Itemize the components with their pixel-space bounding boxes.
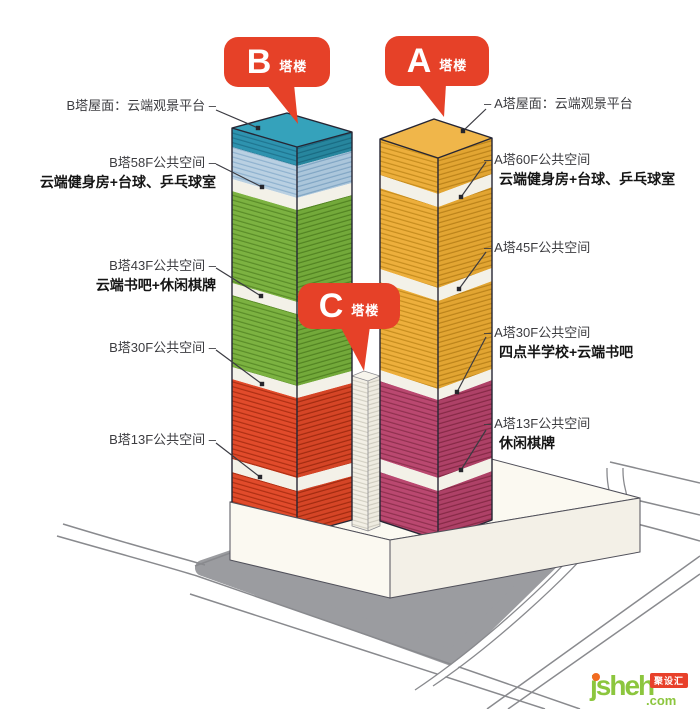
tower-c-suffix: 塔楼 [351, 300, 379, 319]
label-a-30f-amenity: 四点半学校+云端书吧 [499, 345, 633, 360]
label-a-30f: – A塔30F公共空间 [484, 326, 590, 340]
jsheh-logo: jsheh 聚设汇 .com [588, 666, 700, 709]
logo-dot-icon [592, 673, 600, 681]
label-a-45f: – A塔45F公共空间 [484, 241, 590, 255]
bubble-tower-c: C 塔楼 [298, 283, 400, 329]
label-a-roof: – A塔屋面：云端观景平台 [484, 97, 633, 111]
tower-a [380, 119, 492, 540]
tower-a-suffix: 塔楼 [439, 55, 467, 74]
label-b-roof: B塔屋面：云端观景平台 – [66, 99, 216, 113]
bubble-tower-b: B 塔楼 [224, 37, 330, 87]
building-diagram: B 塔楼 A 塔楼 C 塔楼 B塔屋面：云端观景平台 – B塔58F公共空间 –… [0, 0, 700, 709]
label-a-13f: – A塔13F公共空间 [484, 417, 590, 431]
label-b-58f: B塔58F公共空间 – [109, 156, 216, 170]
label-b-13f: B塔13F公共空间 – [109, 433, 216, 447]
logo-badge: 聚设汇 [650, 673, 688, 688]
tower-b-suffix: 塔楼 [279, 56, 307, 75]
label-b-30f: B塔30F公共空间 – [109, 341, 216, 355]
label-a-13f-amenity: 休闲棋牌 [499, 436, 555, 451]
tower-a-letter: A [407, 44, 432, 78]
label-a-60f-amenity: 云端健身房+台球、乒乓球室 [499, 172, 675, 187]
label-b-43f-amenity: 云端书吧+休闲棋牌 [96, 278, 216, 293]
bubble-tower-a: A 塔楼 [385, 36, 489, 86]
leader-a-roof [461, 109, 486, 133]
label-b-43f: B塔43F公共空间 – [109, 259, 216, 273]
logo-tld: .com [646, 693, 676, 708]
tower-c-letter: C [319, 289, 344, 323]
label-a-60f: – A塔60F公共空间 [484, 153, 590, 167]
tower-c [352, 371, 380, 531]
bubble-a-tail [418, 84, 446, 117]
label-b-58f-amenity: 云端健身房+台球、乒乓球室 [40, 175, 216, 190]
tower-b-letter: B [247, 45, 272, 79]
